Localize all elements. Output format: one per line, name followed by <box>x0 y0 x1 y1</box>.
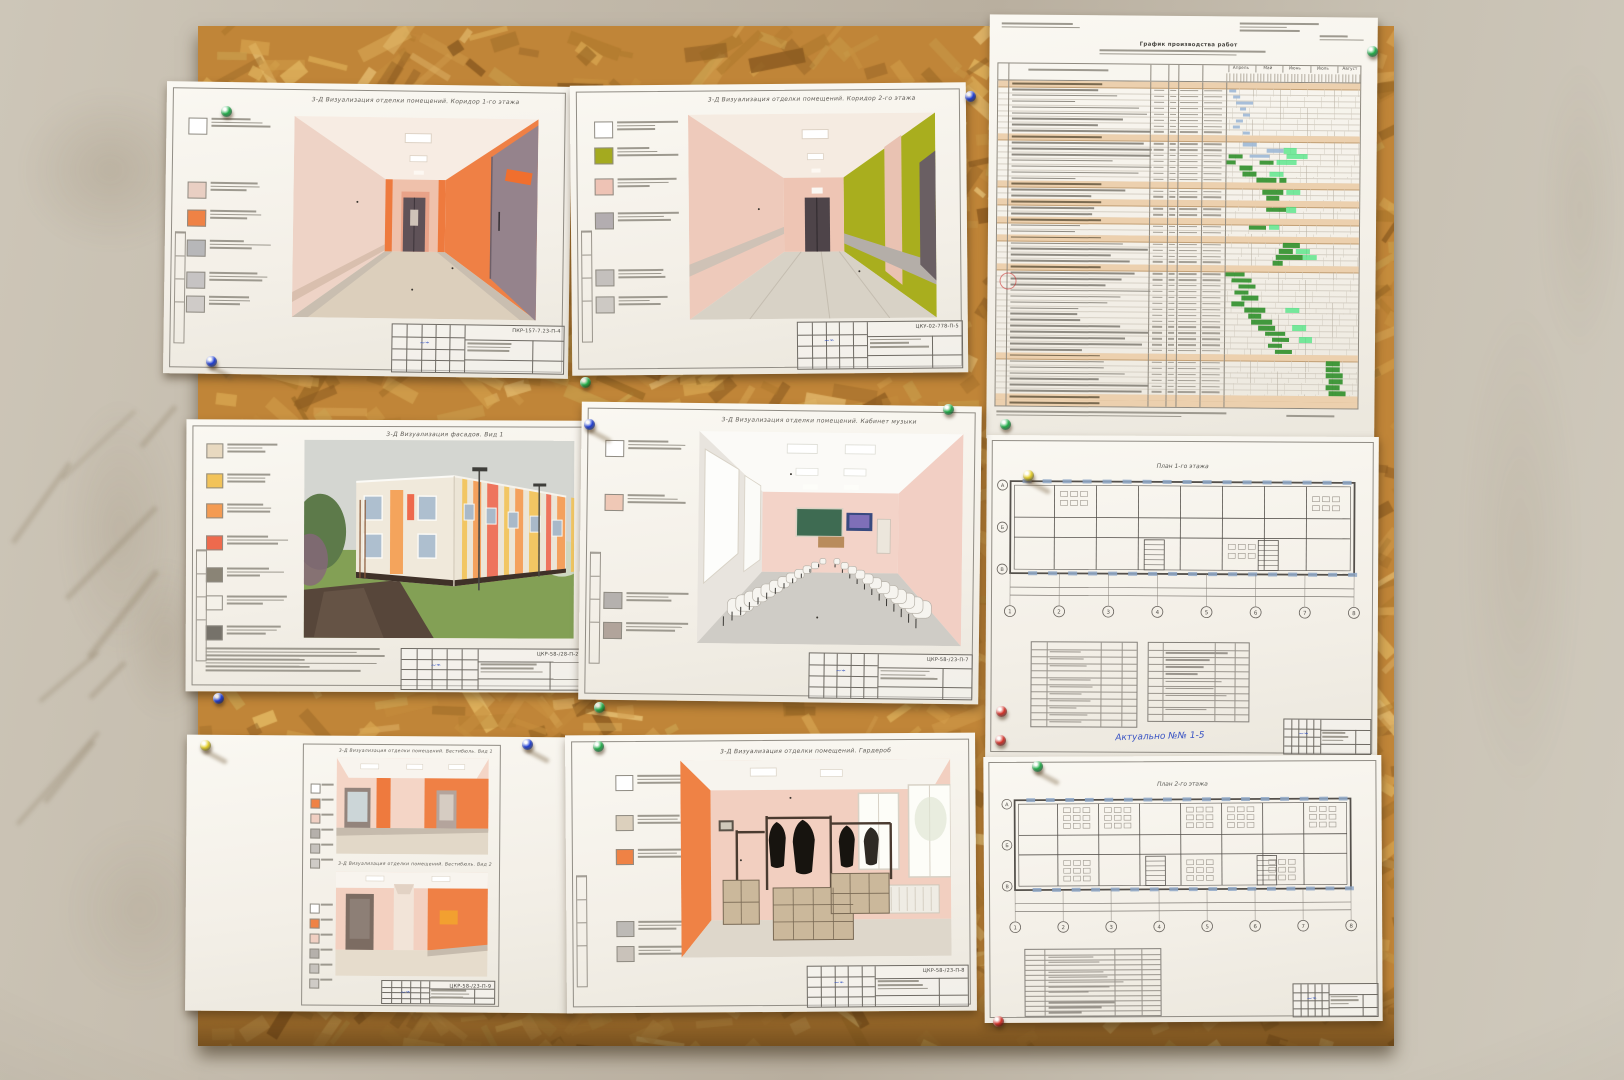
text-line <box>617 154 678 156</box>
table-text-line <box>1049 1007 1102 1009</box>
gantt-bar-gr <box>1263 190 1283 195</box>
cell-text-line <box>1204 155 1222 157</box>
cell-text-line <box>1204 96 1222 98</box>
legend-text <box>227 595 289 606</box>
plan-element <box>1111 888 1120 892</box>
task-name-line <box>1012 106 1139 109</box>
cell-text-line <box>1202 392 1220 394</box>
plan-element <box>1328 573 1337 577</box>
legend-text <box>617 147 679 159</box>
cell-text-line <box>1152 373 1162 374</box>
plan-element <box>1228 823 1235 828</box>
plan-element <box>1104 798 1113 802</box>
plan-element <box>1332 506 1339 511</box>
table-text-line <box>1049 707 1076 708</box>
task-name-line <box>1010 283 1105 285</box>
plan-element <box>1124 823 1131 828</box>
wall-stain <box>1460 300 1580 800</box>
cell-text-line <box>1202 344 1220 346</box>
text-line <box>320 949 332 951</box>
cell-text-line <box>1169 226 1175 227</box>
legend-swatch <box>595 212 614 229</box>
plan-element <box>1348 573 1357 577</box>
text-line <box>431 993 469 995</box>
gantt-bar-gr <box>1272 338 1289 343</box>
legend-swatch <box>187 239 206 256</box>
cell-text-line <box>1180 90 1198 92</box>
cell-text-line <box>1169 255 1175 256</box>
signature-scribble: ~⌁ <box>1307 994 1318 1003</box>
gantt-bar-gr <box>1258 326 1275 331</box>
text-line <box>618 269 663 271</box>
legend-text <box>210 210 272 222</box>
render-corridor-1 <box>292 116 539 320</box>
text-line <box>210 243 271 245</box>
task-name-line <box>1012 100 1075 102</box>
cell-text-line <box>1180 114 1198 116</box>
cell-text-line <box>1179 279 1197 281</box>
legend-text <box>618 269 680 281</box>
facade-window <box>508 512 518 528</box>
render-music-room <box>697 431 964 646</box>
text-line <box>619 300 650 302</box>
text-line <box>618 212 679 214</box>
plan-element <box>1206 815 1213 820</box>
schedule-title: График производства работ <box>1140 42 1238 49</box>
plan-element <box>1183 797 1192 801</box>
text-line <box>321 829 333 831</box>
gantt-bar-bl <box>1236 119 1243 122</box>
plan-element <box>1188 572 1197 576</box>
plan-element <box>1206 823 1213 828</box>
table-text-line <box>1048 956 1093 958</box>
finish-schedule-table <box>1147 642 1249 723</box>
legend-swatch <box>187 209 206 226</box>
cell-text-line <box>1202 368 1220 370</box>
cell-text-line <box>1169 261 1175 262</box>
table-text-line <box>1049 714 1088 715</box>
cell-text-line <box>1154 143 1164 144</box>
table-text-line <box>1048 971 1103 973</box>
gantt-bar-br <box>1296 249 1310 255</box>
task-name-line <box>1010 378 1099 380</box>
task-name-line <box>1010 366 1104 368</box>
legend-text <box>617 121 679 133</box>
cell-text-line <box>1170 143 1176 144</box>
task-name-line <box>1010 354 1100 356</box>
cell-text-line <box>1180 96 1198 98</box>
text-line <box>210 240 244 242</box>
text-line <box>1322 736 1348 738</box>
text-line <box>227 481 265 483</box>
cell-text-line <box>1180 102 1198 104</box>
plan-element <box>1163 480 1172 484</box>
cell-text-line <box>1153 190 1163 191</box>
facade-window <box>486 508 496 524</box>
plan-element <box>1015 910 1351 912</box>
plan-element <box>1189 887 1198 891</box>
plan-element <box>1148 572 1157 576</box>
cell-text-line <box>1153 279 1163 280</box>
legend-text <box>628 440 690 452</box>
table-text-line <box>1050 651 1081 652</box>
plan-element <box>1319 806 1326 811</box>
cell-text-line <box>1203 250 1221 252</box>
gantt-bar-gr <box>1279 249 1293 254</box>
legend-swatch <box>309 979 319 989</box>
cell-text-line <box>1203 256 1221 258</box>
text-line <box>227 575 260 577</box>
text-line <box>468 342 512 344</box>
plan-element <box>1288 875 1295 880</box>
plan-element <box>1310 822 1317 827</box>
pushpin-green <box>580 377 591 388</box>
text-line <box>209 275 267 277</box>
plan-element <box>1283 481 1292 485</box>
gantt-bar-br <box>1299 337 1313 343</box>
text-line <box>227 451 265 453</box>
plan-element <box>1308 573 1317 577</box>
text-line <box>322 799 334 801</box>
text-line <box>626 629 675 631</box>
plan-element <box>1028 571 1037 575</box>
cell-text-line <box>1152 385 1162 386</box>
legend-swatch <box>310 904 320 914</box>
text-line <box>211 121 262 123</box>
cell-text-line <box>1154 125 1164 126</box>
cell-text-line <box>1202 297 1220 299</box>
gantt-bar-gr <box>1329 391 1346 396</box>
legend-text <box>209 296 271 308</box>
cell-text-line <box>1204 108 1222 110</box>
plan-element <box>1085 798 1094 802</box>
chair <box>820 558 826 564</box>
cell-text-line <box>1203 191 1221 193</box>
legend-text <box>321 829 333 833</box>
plan-element <box>1288 867 1295 872</box>
plan-element <box>1196 815 1203 820</box>
plan-element <box>1083 868 1090 873</box>
cell-text-line <box>1153 178 1163 179</box>
cell-text-line <box>1168 368 1174 369</box>
text-line <box>320 979 332 981</box>
legend-text <box>628 494 690 506</box>
wall-streak <box>86 570 159 660</box>
task-name-line <box>1011 236 1101 238</box>
task-name-line <box>1011 177 1075 179</box>
task-name-line <box>1010 331 1148 334</box>
table-text-line <box>1165 709 1206 711</box>
gantt-bar-br <box>1286 207 1296 212</box>
plan-element <box>1248 544 1255 549</box>
gantt-bar-gr <box>1241 296 1258 301</box>
text-line <box>206 651 357 653</box>
floor-plan-2: План 2-го этажа12345678АБВ <box>995 773 1370 941</box>
axis-number: 4 <box>1156 610 1160 616</box>
pushpin-blue <box>213 693 224 704</box>
text-line <box>321 859 333 861</box>
text-line <box>227 473 270 475</box>
plan-element <box>1088 572 1097 576</box>
text-line <box>227 477 265 479</box>
plan-element <box>1073 823 1080 828</box>
gantt-body <box>994 80 1361 409</box>
text-line <box>227 539 288 541</box>
plan-element <box>1237 807 1244 812</box>
task-name-line <box>1011 230 1075 232</box>
margin-stamp <box>576 875 588 987</box>
signature-scribble: ~⌁ <box>430 661 441 670</box>
col-divider <box>1005 400 1006 406</box>
text-line <box>1002 26 1080 28</box>
plan-element <box>1019 853 1347 855</box>
plan-element <box>1043 479 1052 483</box>
task-name-line <box>1011 248 1148 251</box>
plan-element <box>1300 797 1309 801</box>
title-block: ~⌁ <box>1283 719 1371 755</box>
cell-text-line <box>1180 161 1198 163</box>
table-text-line <box>1048 961 1099 963</box>
cell-text-line <box>1153 196 1163 197</box>
gantt-bar-bl <box>1243 131 1250 134</box>
plan-element <box>1168 572 1177 576</box>
gantt-bar-gr <box>1326 373 1343 378</box>
task-name-line <box>1011 242 1123 245</box>
gantt-bar-gr <box>1229 154 1243 159</box>
text-line <box>227 503 263 505</box>
gantt-bar-bl <box>1233 125 1240 128</box>
cell-text-line <box>1168 374 1174 375</box>
gantt-bar-gr <box>1329 379 1343 384</box>
gantt-bar-gr <box>1235 290 1249 295</box>
cell-text-line <box>1204 132 1222 134</box>
plan-element <box>1052 888 1061 892</box>
gantt-bar-br <box>1277 160 1297 166</box>
gantt-bar-gr <box>1268 343 1282 348</box>
cell-text-line <box>1178 338 1196 340</box>
text-line <box>206 662 377 664</box>
cell-text-line <box>1202 362 1220 364</box>
title-block-text <box>881 670 939 682</box>
plan-element <box>1073 860 1080 865</box>
plan-element <box>1019 834 1347 836</box>
text-line <box>1320 39 1364 41</box>
cell-text-line <box>1203 279 1221 281</box>
gantt-bar-gr <box>1260 160 1274 165</box>
text-line <box>881 677 938 679</box>
cell-text-line <box>1178 309 1196 311</box>
text-line <box>626 626 682 628</box>
gantt-bar-bl <box>1236 102 1253 105</box>
cell-text-line <box>1152 368 1162 369</box>
cell-text-line <box>1180 167 1198 169</box>
text-line <box>227 447 262 449</box>
task-name-line <box>1011 218 1101 220</box>
legend-swatch <box>594 147 613 164</box>
gantt-bar-gr <box>1326 362 1340 367</box>
axis-number: 1 <box>1008 609 1012 615</box>
cell-text-line <box>1154 119 1164 120</box>
legend-swatch <box>206 473 223 488</box>
legend-swatch <box>187 181 206 198</box>
facade-legend <box>186 419 590 420</box>
gantt-bar-br <box>1270 172 1284 178</box>
plan-element <box>1026 798 1035 802</box>
margin-stamp <box>173 231 186 343</box>
cell-text-line <box>1169 179 1175 180</box>
cell-text-line <box>1203 208 1221 210</box>
plan-element <box>1326 886 1335 890</box>
wall-stain <box>60 400 180 660</box>
legend-text <box>210 240 272 252</box>
gantt-bar-br <box>1292 325 1306 331</box>
chair <box>848 566 856 574</box>
legend-swatch <box>616 815 634 831</box>
gantt-bar-gr <box>1275 349 1292 354</box>
task-name-line <box>1010 348 1082 350</box>
cell-text-line <box>1153 232 1163 233</box>
facade-stripe <box>462 478 467 586</box>
cell-text-line <box>1168 338 1174 339</box>
cell-text-line <box>1168 326 1174 327</box>
cell-text-line <box>1179 196 1197 198</box>
pushpin-red <box>993 1016 1004 1027</box>
text-line <box>210 213 261 215</box>
cell-text-line <box>1168 391 1174 392</box>
legend-swatch <box>603 592 622 609</box>
table-text-line <box>1049 665 1086 666</box>
legend-swatch <box>596 296 615 313</box>
gantt-bar-bl <box>1233 96 1240 99</box>
legend-swatch <box>309 964 319 974</box>
gantt-bar-gr <box>1272 261 1282 266</box>
gantt-bar-gr <box>1248 314 1262 319</box>
plan-element <box>1323 481 1332 485</box>
plan-element <box>1150 887 1159 891</box>
plan-element <box>1081 491 1088 496</box>
legend-swatch <box>615 775 633 791</box>
task-name-line <box>1011 266 1101 268</box>
sheet-vestibule: 3-Д Визуализация отделки помещений. Вест… <box>185 735 575 1014</box>
facade-window <box>552 520 562 536</box>
cell-text-line <box>1152 303 1162 304</box>
task-name-line <box>1010 343 1142 346</box>
cell-text-line <box>1180 143 1198 145</box>
text-line <box>227 633 266 635</box>
plan-element <box>1083 479 1092 483</box>
text-line <box>321 814 333 816</box>
plan-element <box>1014 537 1350 539</box>
cell-text-line <box>1179 273 1197 275</box>
plan-element <box>1243 480 1252 484</box>
text-line <box>227 535 268 537</box>
legend-text <box>227 535 289 546</box>
cell-text-line <box>1153 249 1163 250</box>
cell-text-line <box>1180 131 1198 133</box>
pushpin-green <box>1000 419 1011 430</box>
cell-text-line <box>1169 208 1175 209</box>
cell-text-line <box>1170 149 1176 150</box>
cell-text-line <box>1178 297 1196 299</box>
plan-element <box>1046 798 1055 802</box>
text-line <box>618 182 669 184</box>
text-line <box>481 664 537 666</box>
title-block-text <box>431 989 471 1000</box>
table-text-line <box>1166 659 1210 661</box>
text-line <box>227 571 284 573</box>
pushpin-yellow <box>1023 470 1034 481</box>
task-name-line <box>1011 201 1101 203</box>
pushpin-yellow <box>200 740 211 751</box>
facade-stripe <box>487 482 498 582</box>
cell-text-line <box>1204 149 1222 151</box>
cell-text-line <box>1178 285 1196 287</box>
table-text-line <box>1166 680 1222 682</box>
legend-swatch <box>605 494 624 511</box>
axis-number: 7 <box>1301 924 1304 930</box>
text-line <box>626 592 688 594</box>
text-line <box>617 147 649 149</box>
legend-text <box>227 473 289 484</box>
text-line <box>618 216 664 218</box>
plan-element <box>1064 876 1071 881</box>
plan-element <box>1329 822 1336 827</box>
render-vestibule-1 <box>336 758 489 855</box>
axis-number: 7 <box>1303 611 1307 617</box>
cell-text-line <box>1179 232 1197 234</box>
cell-text-line <box>1168 315 1174 316</box>
cell-text-line <box>1154 149 1164 150</box>
text-line <box>996 414 1181 417</box>
plan-element <box>1091 888 1100 892</box>
axis-number: 5 <box>1205 924 1208 930</box>
legend-text <box>209 272 271 284</box>
table-text-line <box>1050 658 1084 659</box>
text-line <box>431 989 466 991</box>
gantt-bar-gr <box>1226 160 1236 165</box>
cell-text-line <box>1204 167 1222 169</box>
plan-element <box>1269 875 1276 880</box>
cell-text-line <box>1152 379 1162 380</box>
table-text-line <box>1165 695 1226 697</box>
cell-text-line <box>1178 350 1196 352</box>
table-text-line <box>1166 666 1204 667</box>
legend-text <box>227 625 289 636</box>
task-name-line <box>1012 165 1152 168</box>
cell-text-line <box>1202 333 1220 335</box>
plan-element <box>1065 798 1074 802</box>
cell-text-line <box>1203 244 1221 246</box>
cell-text-line <box>1203 173 1221 175</box>
text-line <box>626 600 671 602</box>
task-name-line <box>1010 396 1100 398</box>
sheet-title: 3-Д Визуализация отделки помещений. Гард… <box>720 747 891 755</box>
cell-text-line <box>1168 332 1174 333</box>
doc-code: ЦКР-58-/23-П-7 <box>927 657 969 664</box>
cell-text-line <box>1152 350 1162 351</box>
head-divider <box>1168 65 1169 81</box>
text-line <box>227 629 277 631</box>
legend-text <box>321 814 333 818</box>
cell-text-line <box>1180 149 1198 151</box>
legend-text <box>211 182 273 194</box>
text-line <box>619 303 661 305</box>
table-text-line <box>1049 693 1081 694</box>
text-line <box>227 507 271 509</box>
cell-text-line <box>1178 380 1196 382</box>
plan-element <box>1312 506 1319 511</box>
plan-element <box>1070 500 1077 505</box>
